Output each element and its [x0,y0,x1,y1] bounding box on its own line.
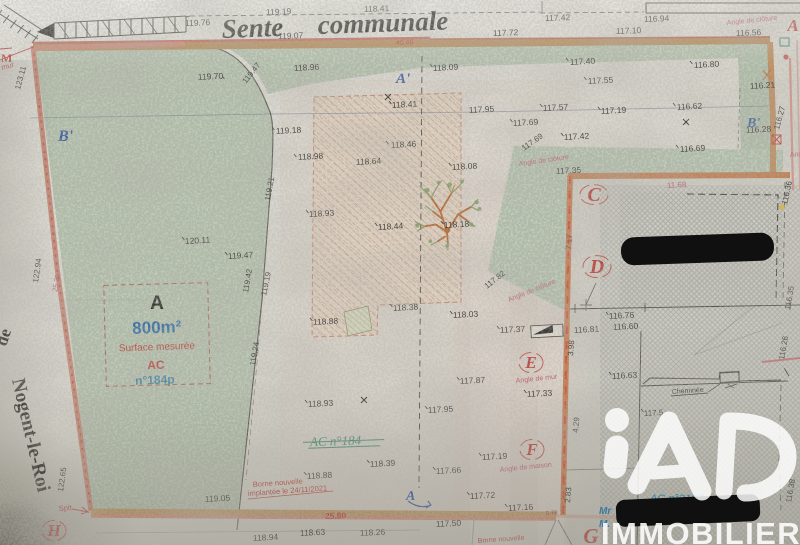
svg-text:IMMOBILIER: IMMOBILIER [601,516,800,545]
